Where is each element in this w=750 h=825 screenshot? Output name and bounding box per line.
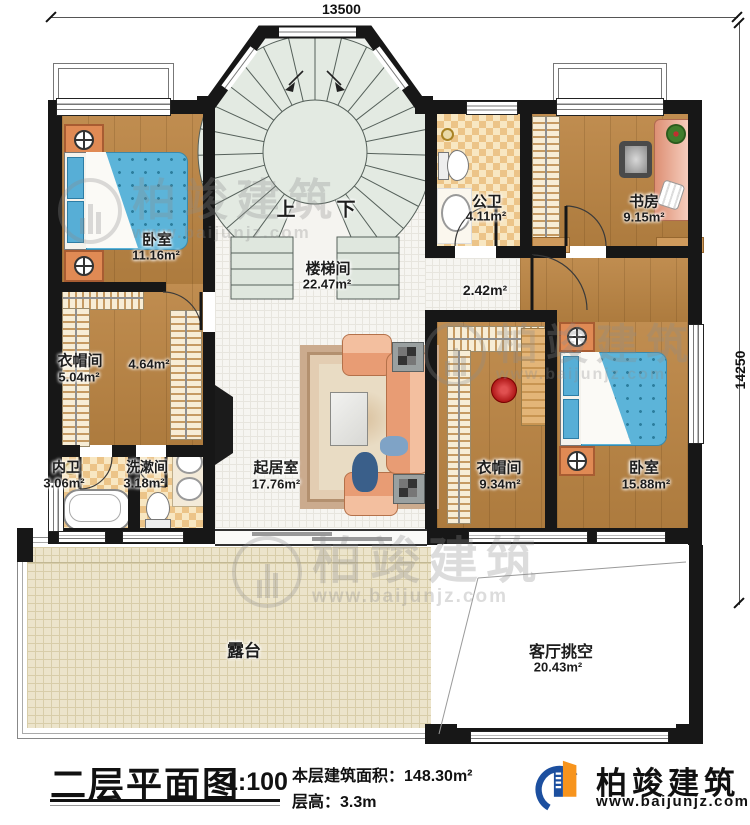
floor-area-label: 本层建筑面积：	[292, 768, 404, 785]
floor-area-row: 本层建筑面积：148.30m²	[292, 762, 473, 786]
wall-study-south-b	[606, 246, 702, 258]
sliding-door-panel	[252, 532, 332, 536]
room-area: 9.34m²	[479, 477, 520, 492]
room-area: 4.11m²	[466, 209, 506, 224]
wall-pubbath-west	[425, 114, 437, 258]
wall-cloak1-south-b	[112, 445, 136, 457]
room-label: 内卫	[52, 457, 80, 477]
wall-living-west-b	[203, 332, 215, 528]
room-area: 22.47m²	[303, 277, 351, 292]
lamp-icon	[74, 130, 94, 150]
plant-icon	[666, 124, 686, 144]
nightstand	[559, 446, 595, 476]
wall-void-right	[689, 545, 703, 744]
wall-bedroom1-east	[203, 114, 215, 282]
bathtub-inner	[69, 494, 121, 522]
room-label: 起居室	[253, 457, 298, 478]
wall-cloak2-west	[425, 310, 437, 545]
wall-cloak1-south-c	[166, 445, 215, 457]
bed-pillow	[563, 399, 579, 439]
company-url: www.baijunjz.com	[596, 793, 749, 810]
cloak1-closet-right	[170, 310, 202, 440]
wall-cloak1-south-a	[48, 445, 80, 457]
void-corner-post	[676, 724, 703, 744]
room-label: 衣帽间	[476, 457, 521, 478]
floor-height-value: 3.3m	[340, 794, 376, 811]
room-label: 下	[336, 195, 355, 222]
wall-bay-corner	[415, 96, 433, 114]
room-label: 书房	[629, 191, 659, 212]
study-closet	[532, 116, 560, 246]
room-area: 4.64m²	[128, 357, 169, 372]
floor-height-label: 层高：	[292, 794, 340, 811]
floor-plan: 卧室 11.16m² 衣帽间 5.04m² 4.64m² 内卫 3.06m² 洗…	[0, 0, 750, 825]
toilet-bowl	[146, 492, 170, 522]
room-label: 衣帽间	[57, 350, 102, 371]
wall-study-west	[520, 114, 532, 256]
lamp-icon	[567, 327, 587, 347]
room-area: 2.42m²	[463, 282, 507, 298]
lamp-icon	[567, 451, 587, 471]
speaker-icon	[398, 347, 416, 365]
room-area: 20.43m²	[534, 660, 582, 675]
floor-area-value: 148.30m²	[404, 768, 473, 785]
washroom-south-window	[122, 531, 184, 543]
terrace-step-line	[27, 562, 431, 563]
nightstand	[559, 322, 595, 352]
room-label: 露台	[227, 637, 261, 662]
wall-outer-right	[688, 100, 702, 545]
bedroom1-window	[56, 98, 171, 116]
bedroom2-window	[688, 324, 704, 444]
bed-pillow	[67, 157, 84, 199]
room-label: 洗漱间	[126, 457, 168, 477]
nightstand	[64, 250, 104, 282]
title-underline-thin	[50, 805, 280, 806]
sink	[176, 477, 203, 501]
speaker-icon	[399, 479, 417, 497]
room-label: 卧室	[142, 229, 172, 250]
study-window	[556, 98, 664, 116]
room-label: 上	[276, 195, 295, 222]
company-logo-icon	[535, 757, 589, 815]
wall-bedroom2-west	[545, 310, 557, 528]
office-chair-seat	[625, 146, 647, 173]
room-area: 15.88m²	[622, 477, 670, 492]
room-area: 5.04m²	[58, 370, 99, 385]
coffee-table	[330, 392, 368, 446]
floor-height-row: 层高：3.3m	[292, 788, 376, 812]
wall-bay-corner	[197, 96, 215, 114]
room-label: 卧室	[629, 457, 659, 478]
wall-cloak2-north	[437, 310, 557, 322]
person-figure	[380, 436, 408, 456]
person-figure	[352, 452, 378, 492]
room-area: 3.06m²	[43, 476, 84, 491]
plan-scale: 1:100	[224, 768, 288, 797]
void-corner-post	[425, 724, 457, 744]
room-area: 9.15m²	[623, 210, 664, 225]
room-label: 楼梯间	[305, 258, 350, 279]
room-area: 3.18m²	[123, 476, 164, 491]
dimension-height: 14250	[732, 342, 748, 398]
dimension-line-top	[50, 17, 738, 18]
void-south-window	[470, 731, 669, 743]
bedroom2-south-window	[596, 531, 666, 543]
tv-panel	[215, 385, 233, 465]
public-bath-window	[466, 101, 518, 115]
dimension-line-right	[739, 23, 740, 605]
sliding-door-panel	[312, 537, 392, 541]
title-underline	[50, 799, 280, 802]
inner-bath-south-window	[58, 531, 106, 543]
lamp-icon	[74, 256, 94, 276]
wall-living-west-a	[203, 282, 215, 292]
armchair	[342, 334, 392, 376]
wall-bedroom1-south	[48, 282, 166, 292]
cloak2-wardrobe	[521, 328, 547, 426]
wall-pubbath-south-a	[437, 246, 455, 258]
sliding-door	[215, 529, 427, 546]
bed-pillow	[67, 201, 84, 243]
dimension-width: 13500	[322, 1, 361, 17]
cloak2-closet-left	[447, 350, 471, 524]
cloak2-south-window	[468, 531, 588, 543]
wall-study-south-a	[532, 246, 566, 258]
room-area: 11.16m²	[132, 248, 180, 263]
room-area: 17.76m²	[252, 477, 300, 492]
stool	[491, 377, 517, 403]
bed-pillow	[563, 356, 579, 396]
terrace-post	[17, 528, 33, 562]
room-label: 客厅挑空	[529, 638, 593, 662]
